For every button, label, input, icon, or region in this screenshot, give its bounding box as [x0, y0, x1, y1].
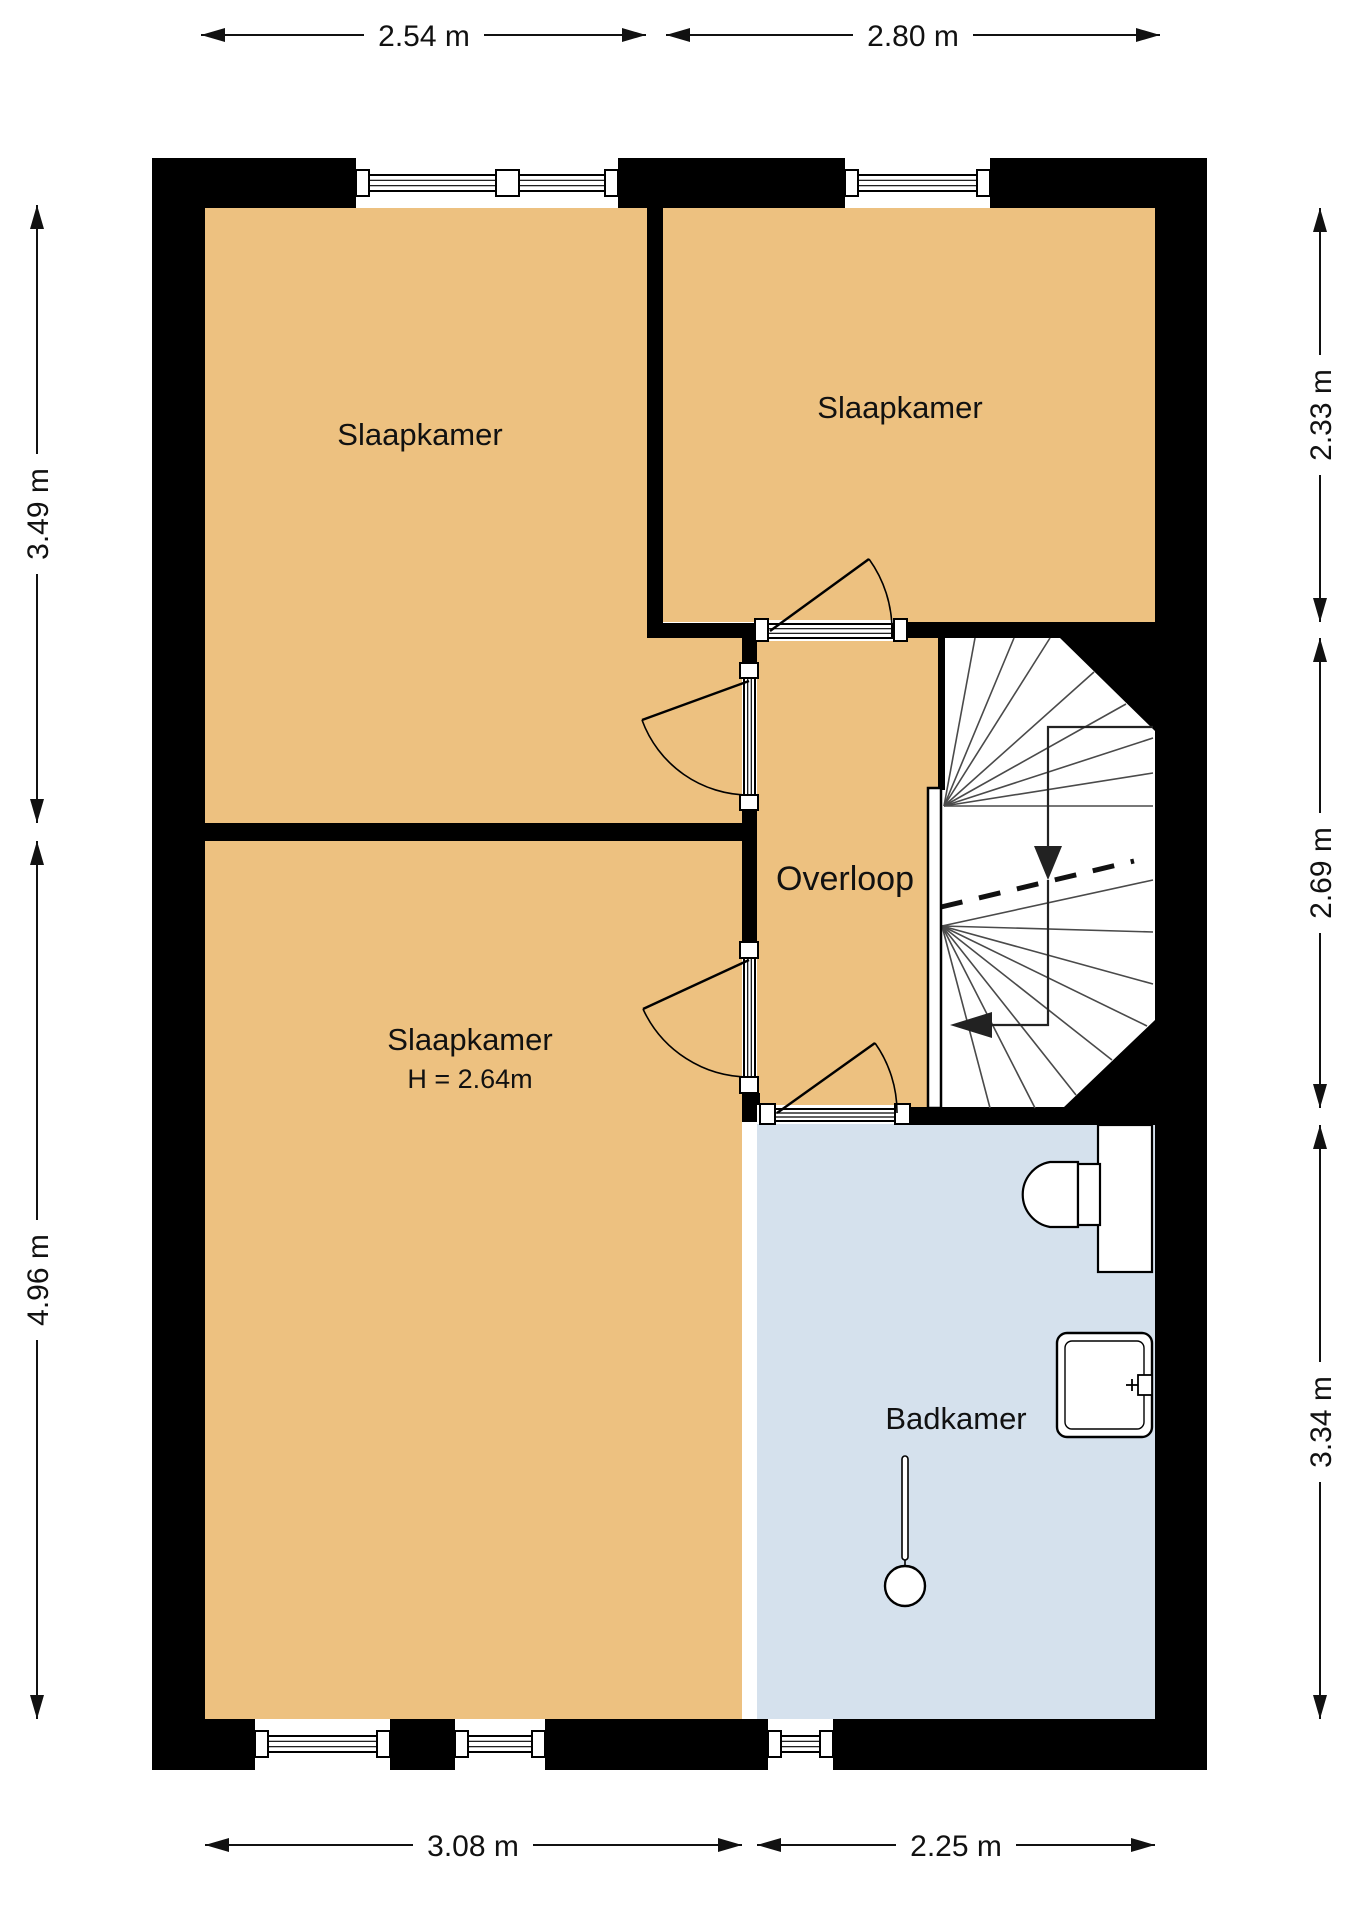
dim-left-2: 4.96 m [16, 841, 58, 1719]
wall-landing-north-right [907, 622, 1155, 638]
svg-text:4.96 m: 4.96 m [22, 1234, 55, 1326]
stair-handrail [928, 788, 941, 1108]
svg-text:2.25 m: 2.25 m [910, 1830, 1002, 1863]
window-bottom-left-b [455, 1719, 545, 1770]
floorplan-page: Slaapkamer Slaapkamer Slaapkamer H = 2.6… [0, 0, 1358, 1920]
svg-text:2.80 m: 2.80 m [867, 20, 959, 53]
dim-right-2: 2.69 m [1299, 638, 1341, 1108]
dim-bottom-1: 3.08 m [205, 1824, 742, 1866]
dim-bottom-2: 2.25 m [757, 1824, 1155, 1866]
window-top-left [356, 158, 618, 208]
shower-cabinet [1098, 1125, 1152, 1272]
toilet [1023, 1162, 1100, 1227]
label-bedroom-bottom-left: Slaapkamer [387, 1022, 552, 1057]
dim-top-2: 2.80 m [666, 14, 1160, 56]
wall-bathroom-north [910, 1107, 1155, 1125]
svg-text:3.49 m: 3.49 m [22, 468, 55, 560]
wall-landing-north-left [647, 623, 755, 638]
label-bedroom-height-note: H = 2.64m [407, 1064, 532, 1094]
svg-text:3.34 m: 3.34 m [1305, 1376, 1338, 1468]
dim-right-3: 3.34 m [1299, 1125, 1341, 1719]
window-bathroom [768, 1719, 833, 1770]
wall-landing-stairs [938, 638, 945, 790]
label-bedroom-top-right: Slaapkamer [817, 390, 982, 425]
window-top-right [845, 158, 990, 208]
floorplan-drawing: Slaapkamer Slaapkamer Slaapkamer H = 2.6… [0, 0, 1358, 1920]
wall-top-bedroom-divider [647, 208, 663, 623]
toilet-bowl [1023, 1162, 1078, 1227]
wall-left-bedroom-divider [205, 823, 742, 841]
wall-landing-west-mid [742, 810, 757, 942]
window-bottom-left-a [255, 1719, 390, 1770]
sink [1057, 1333, 1152, 1437]
room-bedroom-bottom-left [205, 841, 742, 1719]
svg-text:2.33 m: 2.33 m [1305, 369, 1338, 461]
dim-left-1: 3.49 m [16, 205, 58, 823]
dim-right-1: 2.33 m [1299, 208, 1341, 622]
toilet-cistern [1078, 1164, 1100, 1225]
label-bathroom: Badkamer [885, 1401, 1026, 1436]
label-bedroom-top-left: Slaapkamer [337, 417, 502, 452]
svg-text:2.54 m: 2.54 m [378, 20, 470, 53]
svg-text:2.69 m: 2.69 m [1305, 827, 1338, 919]
sink-faucet [1138, 1375, 1152, 1395]
label-landing: Overloop [776, 860, 914, 898]
dim-top-1: 2.54 m [201, 14, 646, 56]
svg-text:3.08 m: 3.08 m [427, 1830, 519, 1863]
